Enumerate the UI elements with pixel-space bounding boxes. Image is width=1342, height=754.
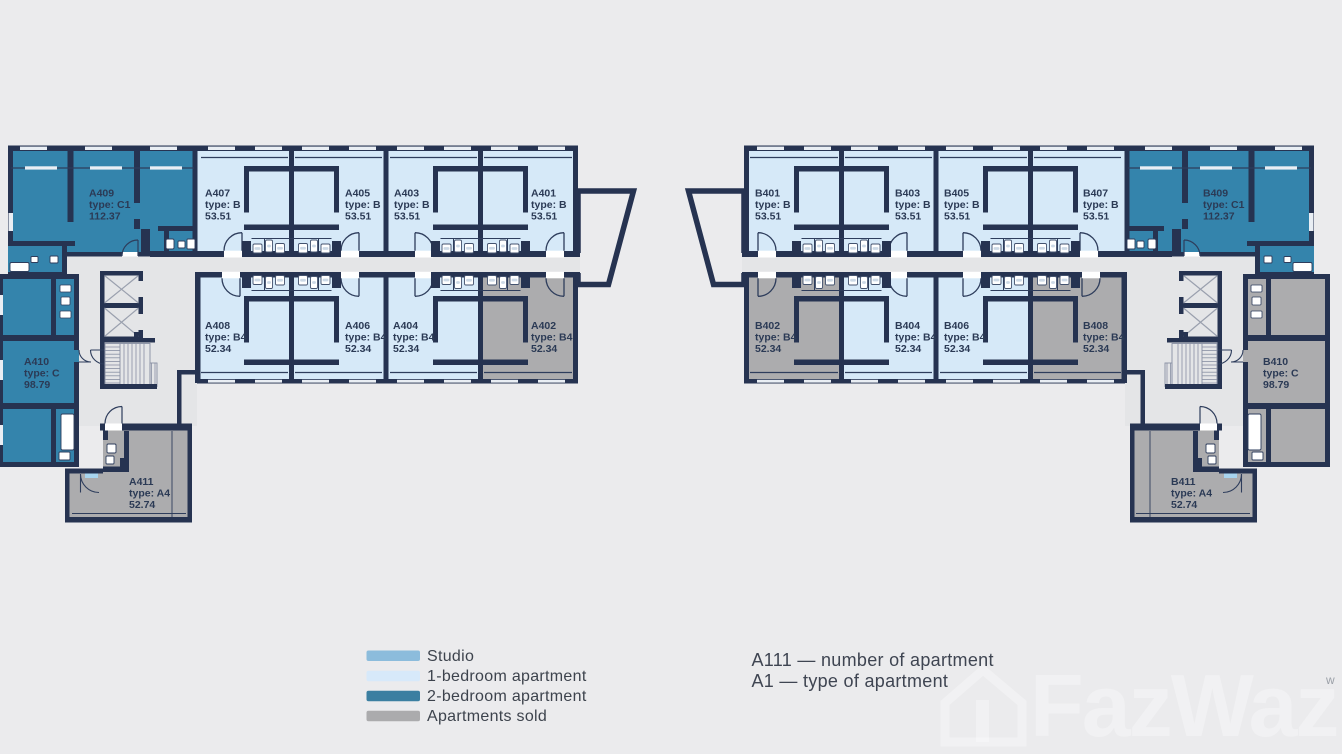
svg-text:Apartments sold: Apartments sold <box>427 708 547 725</box>
svg-text:w: w <box>1325 673 1335 687</box>
svg-text:Studio: Studio <box>427 648 474 665</box>
svg-text:A111 — number of apartment: A111 — number of apartment <box>752 650 994 670</box>
svg-text:FazWaz: FazWaz <box>1030 656 1337 754</box>
svg-text:2-bedroom apartment: 2-bedroom apartment <box>427 688 587 705</box>
svg-text:A1 — type of apartment: A1 — type of apartment <box>752 671 949 691</box>
svg-text:1-bedroom apartment: 1-bedroom apartment <box>427 668 587 685</box>
